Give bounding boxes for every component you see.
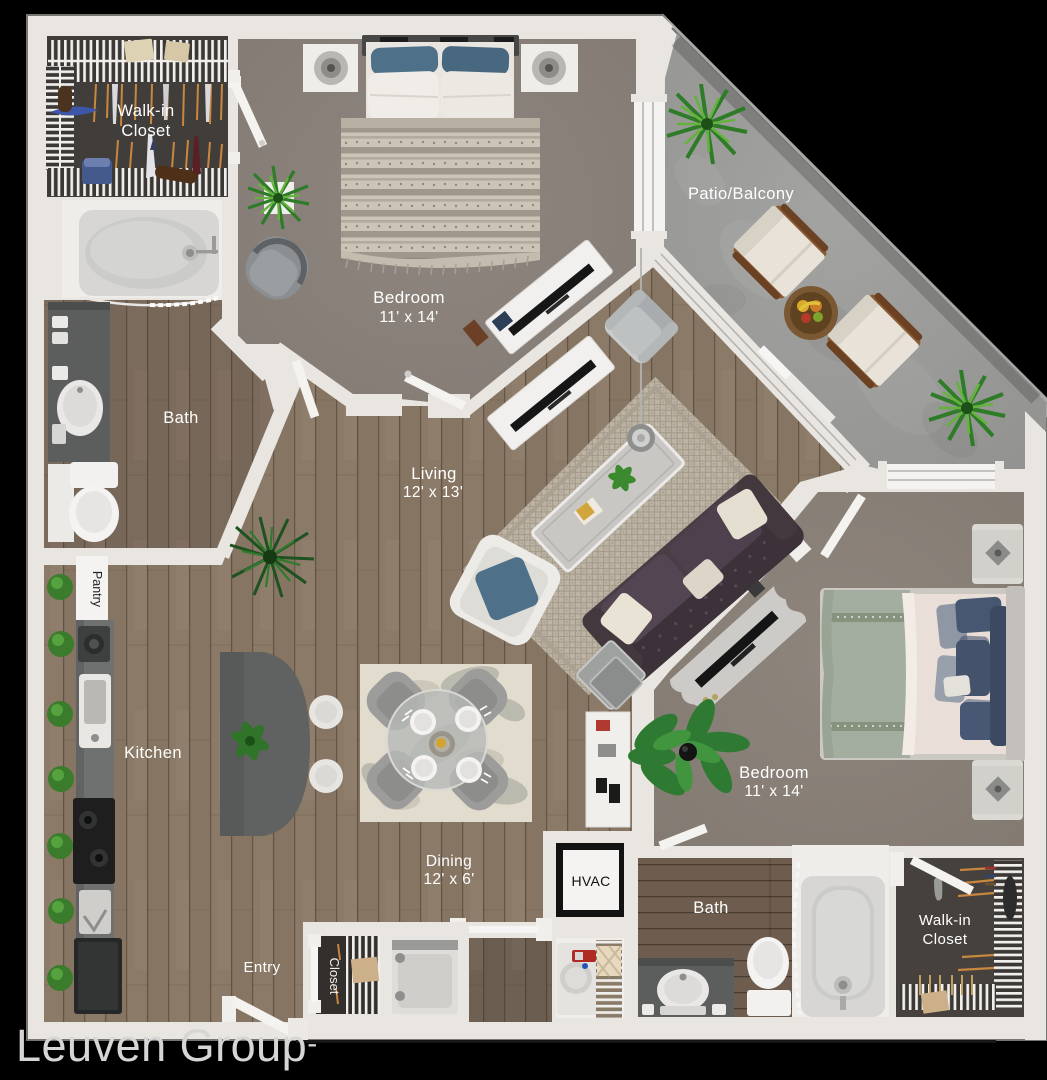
svg-text:Bedroom: Bedroom xyxy=(373,288,445,307)
svg-text:12' x 13': 12' x 13' xyxy=(403,484,463,501)
svg-text:Closet: Closet xyxy=(327,958,342,995)
svg-text:Bath: Bath xyxy=(693,899,729,917)
svg-text:Closet: Closet xyxy=(923,931,968,948)
svg-text:Dining: Dining xyxy=(426,853,472,870)
svg-text:12' x 6': 12' x 6' xyxy=(423,871,474,888)
svg-text:Bath: Bath xyxy=(163,409,199,427)
svg-text:Walk-in: Walk-in xyxy=(919,912,971,929)
svg-text:11' x 14': 11' x 14' xyxy=(379,309,438,326)
svg-text:Leuven Group-: Leuven Group- xyxy=(16,1020,318,1071)
svg-text:Entry: Entry xyxy=(243,959,280,976)
svg-text:Living: Living xyxy=(411,465,457,483)
svg-text:Patio/Balcony: Patio/Balcony xyxy=(688,185,794,203)
svg-text:Kitchen: Kitchen xyxy=(124,744,182,762)
svg-text:Bedroom: Bedroom xyxy=(739,764,809,782)
svg-text:11' x 14': 11' x 14' xyxy=(744,783,803,800)
svg-text:HVAC: HVAC xyxy=(571,873,610,889)
svg-text:Walk-in: Walk-in xyxy=(117,102,174,120)
svg-text:Closet: Closet xyxy=(121,122,170,140)
svg-text:Pantry: Pantry xyxy=(90,571,104,608)
